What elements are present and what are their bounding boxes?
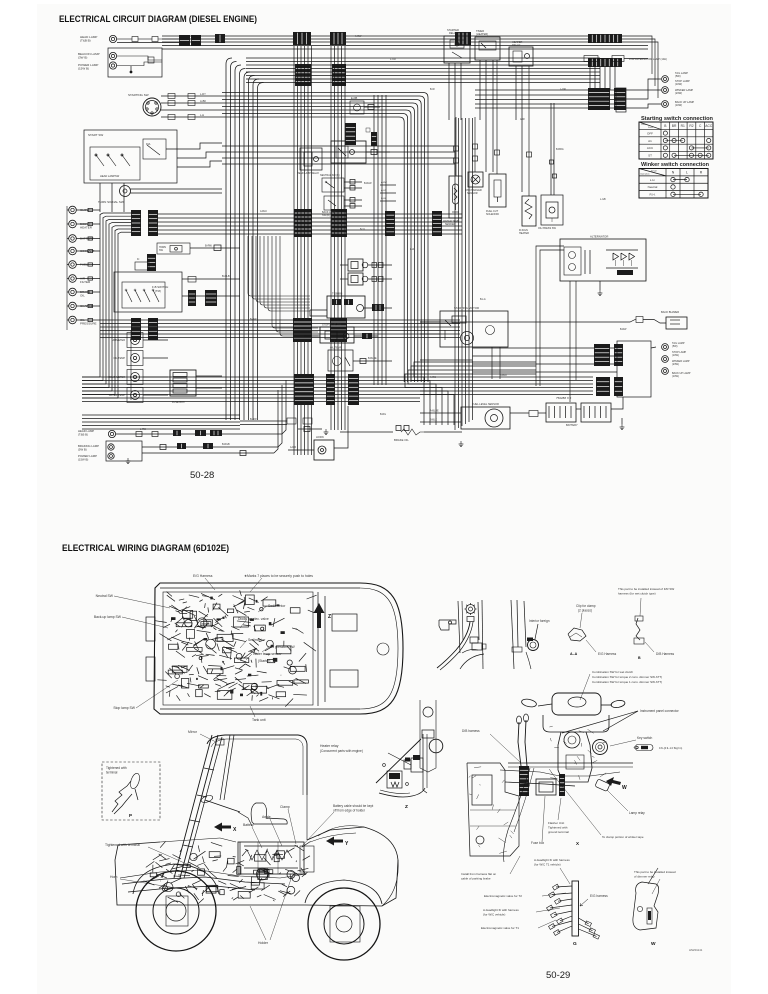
svg-text:B-W: B-W	[430, 88, 435, 91]
svg-text:HEATER: HEATER	[519, 232, 529, 235]
svg-text:L-W: L-W	[410, 248, 415, 251]
svg-text:Horn: Horn	[110, 875, 117, 879]
svg-text:ELECTRICAL CIRCUIT DIAGRAM (DI: ELECTRICAL CIRCUIT DIAGRAM (DIESEL ENGIN…	[59, 14, 257, 24]
svg-text:FILTER: FILTER	[80, 280, 91, 284]
svg-text:BATTERY: BATTERY	[566, 423, 578, 427]
svg-text:(23W): (23W)	[675, 91, 682, 95]
svg-text:A-BLK: A-BLK	[500, 374, 507, 377]
svg-text:A deadlight fit with harness: A deadlight fit with harness	[483, 908, 519, 912]
svg-text:Back-up lamp SW: Back-up lamp SW	[94, 615, 122, 619]
svg-text:B: B	[638, 656, 641, 660]
svg-text:HNZ01141: HNZ01141	[689, 948, 703, 952]
svg-text:G: G	[573, 941, 577, 947]
svg-text:W: W	[622, 785, 627, 791]
svg-text:A-RG: A-RG	[430, 376, 436, 379]
svg-text:B-RW: B-RW	[620, 328, 627, 331]
svg-text:A-BK: A-BK	[200, 99, 206, 103]
svg-text:B-LB: B-LB	[381, 198, 386, 200]
svg-text:BR: BR	[672, 124, 677, 128]
svg-text:(10W): (10W)	[675, 82, 682, 86]
svg-text:B-YL: B-YL	[360, 228, 366, 231]
svg-text:Instrument panel connector: Instrument panel connector	[640, 709, 680, 713]
svg-text:Mirror: Mirror	[188, 730, 198, 734]
svg-text:9.8–{0.9–1.0 5kgf·m}: 9.8–{0.9–1.0 5kgf·m}	[659, 747, 682, 750]
svg-text:Neutral: Neutral	[648, 185, 658, 189]
svg-text:(10W): (10W)	[672, 354, 679, 357]
svg-text:HEATER: HEATER	[80, 226, 93, 230]
svg-text:ground terminal: ground terminal	[548, 830, 569, 834]
svg-text:A-RW: A-RW	[381, 181, 388, 184]
svg-text:L-OR: L-OR	[390, 58, 396, 61]
svg-text:Operation: Operation	[640, 173, 650, 176]
svg-text:IC: IC	[137, 258, 140, 261]
svg-text:START SW: START SW	[88, 133, 103, 137]
svg-text:SENSOR: SENSOR	[467, 192, 478, 195]
svg-text:B-LG: B-LG	[480, 298, 486, 301]
svg-text:HOUR METER: HOUR METER	[108, 376, 125, 379]
svg-text:Posit.: Posit.	[648, 126, 654, 129]
svg-text:B-RW: B-RW	[250, 318, 257, 321]
svg-text:(TM): (TM)	[155, 289, 161, 293]
svg-text:Holder: Holder	[258, 941, 269, 945]
svg-text:L-OR: L-OR	[560, 88, 566, 91]
svg-text:Electromagnetic valve for T1: Electromagnetic valve for T1	[481, 926, 519, 930]
svg-text:T-28888: T-28888	[332, 292, 343, 296]
svg-text:(5W): (5W)	[675, 74, 681, 78]
svg-text:B-BRG: B-BRG	[556, 148, 564, 151]
svg-text:L.H.: L.H.	[650, 178, 656, 182]
svg-text:L-RW: L-RW	[140, 428, 147, 431]
svg-text:Interior foreign: Interior foreign	[529, 619, 550, 623]
svg-text:A-W: A-W	[520, 118, 525, 121]
svg-text:(3W B): (3W B)	[78, 56, 87, 60]
svg-text:(T&B B): (T&B B)	[78, 433, 88, 437]
svg-text:Starting switch connection: Starting switch connection	[641, 116, 713, 122]
svg-text:Fuse box: Fuse box	[531, 841, 545, 845]
svg-text:(for W/C T1 vehicle): (for W/C T1 vehicle)	[534, 863, 561, 867]
svg-text:P: P	[129, 813, 132, 818]
svg-text:Tightened with: Tightened with	[106, 766, 127, 770]
svg-text:Flasher Unit: Flasher Unit	[548, 821, 564, 825]
svg-text:(Concurrent parts with engine): (Concurrent parts with engine)	[320, 749, 363, 753]
svg-text:FUEL LEVEL SENSOR: FUEL LEVEL SENSOR	[472, 402, 499, 406]
svg-text:Electromagnetic valve for T2: Electromagnetic valve for T2	[484, 894, 522, 898]
svg-text:SENDER: SENDER	[445, 223, 456, 226]
svg-text:A-LW: A-LW	[381, 189, 387, 192]
svg-text:STARTING MOTOR: STARTING MOTOR	[454, 306, 479, 310]
svg-text:50-28: 50-28	[190, 470, 214, 481]
svg-text:Key switch: Key switch	[637, 736, 652, 740]
svg-text:Small: Small	[651, 171, 657, 173]
svg-text:HORN: HORN	[316, 435, 324, 439]
svg-text:BACK BUZZER: BACK BUZZER	[661, 310, 679, 314]
svg-text:ACC: ACC	[705, 124, 713, 128]
svg-text:Battery cable should be kept: Battery cable should be kept	[333, 804, 373, 808]
svg-text:A–A: A–A	[570, 652, 578, 656]
svg-text:(for W/C vehicle): (for W/C vehicle)	[483, 913, 505, 917]
svg-text:To clamp portion of winker tap: To clamp portion of winker tape	[602, 835, 644, 839]
svg-text:Neutral SW: Neutral SW	[96, 594, 114, 598]
svg-text:(5W B): (5W B)	[78, 448, 87, 452]
svg-text:Z: Z	[328, 614, 331, 620]
svg-text:Sedimentor: Sedimentor	[248, 638, 266, 642]
svg-text:B-RG: B-RG	[380, 413, 386, 416]
svg-text:off from edge of holder: off from edge of holder	[333, 809, 366, 813]
svg-text:Diode for elec. valve: Diode for elec. valve	[238, 617, 269, 621]
svg-text:Clamp: Clamp	[280, 805, 290, 809]
svg-text:Tightened with terminal: Tightened with terminal	[105, 843, 140, 847]
svg-text:OFF: OFF	[647, 131, 653, 135]
svg-text:(5W): (5W)	[672, 345, 678, 348]
svg-text:Heater relay: Heater relay	[320, 744, 339, 748]
svg-text:A-RW: A-RW	[355, 35, 362, 38]
svg-text:Tank unit: Tank unit	[252, 718, 266, 722]
svg-text:E/G Harness: E/G Harness	[598, 652, 617, 656]
svg-text:E/G Harness: E/G Harness	[193, 574, 213, 578]
svg-text:(10W): (10W)	[675, 103, 682, 107]
svg-text:D/B harness: D/B harness	[462, 729, 480, 733]
svg-text:Tightened with: Tightened with	[548, 826, 568, 830]
svg-text:RELAY: RELAY	[512, 43, 521, 47]
svg-text:STARTING SW: STARTING SW	[128, 93, 149, 97]
svg-text:B-RLW: B-RLW	[364, 182, 372, 185]
svg-text:L: L	[686, 170, 688, 174]
svg-text:(Starter): (Starter)	[258, 659, 270, 663]
svg-text:harness (for wet clutch type): harness (for wet clutch type)	[618, 592, 656, 596]
svg-text:TURN SIGNAL SW: TURN SIGNAL SW	[98, 200, 124, 204]
svg-text:A-BLUE: A-BLUE	[430, 410, 439, 413]
svg-text:Winker switch connection: Winker switch connection	[641, 162, 709, 168]
svg-text:(23W): (23W)	[672, 363, 679, 366]
svg-text:terminal: terminal	[106, 771, 118, 775]
svg-text:E-DB: E-DB	[351, 96, 357, 100]
svg-text:ELECTRICAL WIRING DIAGRAM (6D1: ELECTRICAL WIRING DIAGRAM (6D102E)	[62, 543, 229, 553]
svg-text:Conn.: Conn.	[641, 124, 647, 126]
svg-text:BRAKE OIL: BRAKE OIL	[394, 438, 409, 442]
svg-text:(15W B): (15W B)	[78, 67, 89, 71]
svg-text:A-BLK: A-BLK	[260, 210, 267, 213]
svg-text:STOP LAMP SW: STOP LAMP SW	[322, 324, 342, 327]
svg-text:SOLENOID: SOLENOID	[486, 213, 499, 216]
svg-text:OIL PRESS SW: OIL PRESS SW	[538, 227, 556, 230]
svg-text:(T&B B): (T&B B)	[80, 39, 91, 43]
svg-text:OIL: OIL	[80, 294, 85, 298]
svg-text:R1: R1	[681, 124, 685, 128]
svg-text:Combination SW for wet clutch: Combination SW for wet clutch	[592, 670, 633, 674]
svg-text:R2: R2	[689, 124, 693, 128]
svg-text:B-RGB: B-RGB	[222, 443, 230, 446]
svg-text:SW (B): SW (B)	[322, 214, 330, 217]
svg-text:Angle: Angle	[262, 815, 271, 819]
svg-text:R.H.: R.H.	[650, 193, 656, 197]
svg-text:B-RW: B-RW	[250, 418, 257, 421]
svg-text:Oil pressure SW: Oil pressure SW	[270, 645, 295, 649]
svg-text:50-29: 50-29	[546, 970, 570, 981]
svg-text:Lamp relay: Lamp relay	[629, 811, 645, 815]
svg-text:(15W B): (15W B)	[78, 458, 88, 462]
svg-text:E/G harness: E/G harness	[590, 894, 608, 898]
svg-text:B-RLB: B-RLB	[222, 274, 230, 278]
svg-text:L-DY: L-DY	[200, 92, 206, 96]
svg-text:Combination SW for torque 1 co: Combination SW for torque 1 conv. dimmer…	[592, 680, 662, 684]
svg-text:This part to be installed inst: This part to be installed instead of F/R…	[618, 587, 674, 591]
svg-text:D/B Harness: D/B Harness	[656, 652, 674, 656]
svg-text:750288 X 2: 750288 X 2	[556, 396, 572, 400]
svg-text:Stop lamp SW: Stop lamp SW	[113, 706, 135, 710]
svg-text:FOR ALTERNATOR LAMP (10A): FOR ALTERNATOR LAMP (10A)	[629, 57, 667, 61]
svg-text:Install from harness flat on: Install from harness flat on	[461, 872, 497, 876]
svg-text:HEAD LAMP RELAY: HEAD LAMP RELAY	[297, 172, 320, 175]
svg-text:L-GB: L-GB	[600, 198, 606, 201]
svg-text:ALTERNATOR: ALTERNATOR	[590, 235, 608, 239]
svg-text:ST: ST	[648, 154, 652, 158]
svg-text:A-RW: A-RW	[290, 446, 297, 449]
svg-text:Sedimentor: Sedimentor	[268, 604, 286, 608]
svg-text:PRESSURE: PRESSURE	[80, 322, 97, 326]
svg-text:B-BLUE: B-BLUE	[368, 357, 377, 360]
svg-text:NEUTRAL SW (N): NEUTRAL SW (N)	[320, 174, 340, 177]
svg-text:Z: Z	[405, 804, 408, 810]
svg-text:B-BLK: B-BLK	[430, 419, 437, 422]
svg-text:cable of parking brake: cable of parking brake	[461, 877, 491, 881]
svg-text:DIA: DIA	[146, 142, 151, 146]
svg-text:ACC: ACC	[647, 146, 654, 150]
svg-text:★Marks 7 places to be securely: ★Marks 7 places to be securely push to h…	[244, 574, 313, 578]
svg-text:(10W): (10W)	[672, 375, 679, 378]
svg-text:(2 places): (2 places)	[578, 609, 592, 613]
svg-text:HEAD LAMPSW: HEAD LAMPSW	[100, 174, 120, 178]
svg-text:OIL TEMP: OIL TEMP	[330, 347, 342, 350]
svg-text:(HEATER): (HEATER)	[476, 32, 488, 36]
svg-text:Battery: Battery	[243, 823, 254, 827]
svg-text:RELAY: RELAY	[449, 31, 458, 35]
svg-text:A deadlight fit with harness: A deadlight fit with harness	[534, 858, 570, 862]
svg-text:Combination SW for torque 2 co: Combination SW for torque 2 conv. dimmer…	[592, 675, 662, 679]
svg-text:B-RW: B-RW	[205, 244, 212, 248]
svg-text:X: X	[576, 841, 579, 846]
svg-text:W: W	[651, 941, 656, 947]
svg-text:Clip for clamp: Clip for clamp	[576, 604, 596, 608]
svg-text:A1: A1	[648, 139, 652, 143]
svg-text:Water temp sensor: Water temp sensor	[253, 652, 282, 656]
svg-text:L-H: L-H	[200, 113, 204, 117]
svg-text:AMMETER: AMMETER	[113, 339, 126, 342]
